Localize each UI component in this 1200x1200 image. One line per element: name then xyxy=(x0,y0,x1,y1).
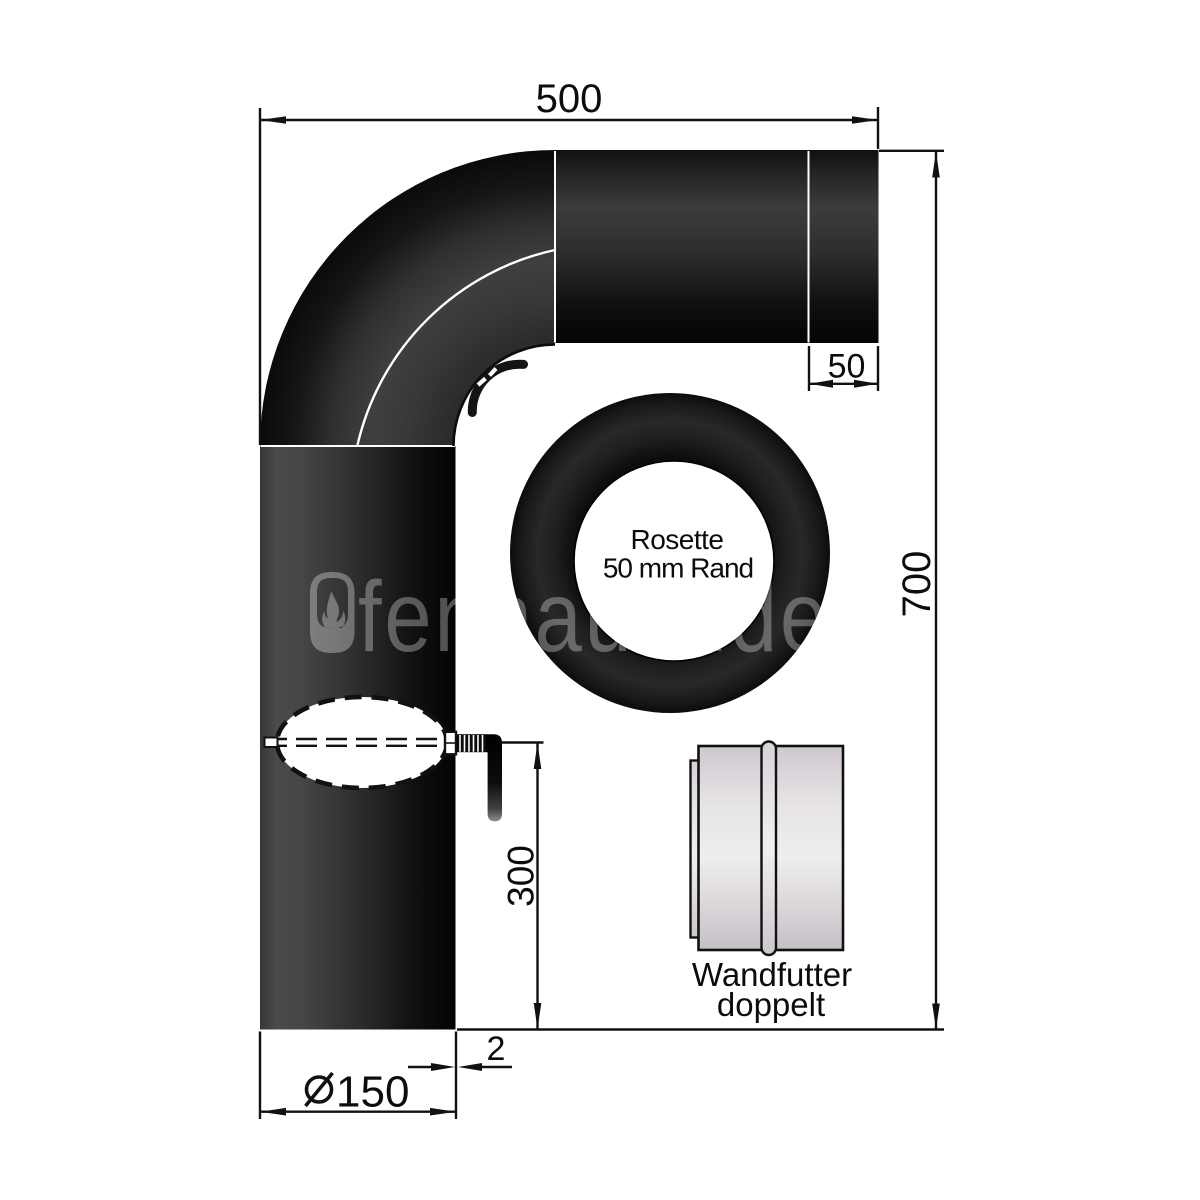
svg-text:50 mm Rand: 50 mm Rand xyxy=(603,553,753,584)
svg-text:Rosette: Rosette xyxy=(631,524,724,555)
svg-text:doppelt: doppelt xyxy=(717,986,825,1023)
svg-text:150: 150 xyxy=(336,1068,409,1117)
svg-text:500: 500 xyxy=(536,77,603,121)
svg-text:2: 2 xyxy=(487,1030,506,1068)
svg-text:50: 50 xyxy=(828,348,866,386)
svg-text:300: 300 xyxy=(501,845,542,907)
svg-text:700: 700 xyxy=(895,551,939,618)
